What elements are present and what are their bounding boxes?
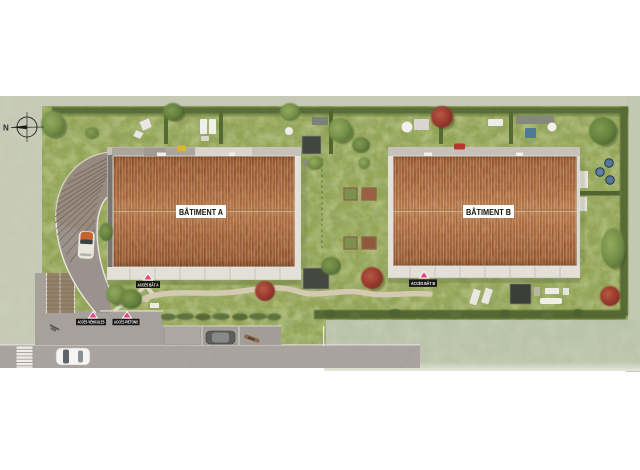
svg-text:BÂTIMENT A: BÂTIMENT A bbox=[179, 206, 223, 217]
svg-text:ACCÈS VÉHICULES: ACCÈS VÉHICULES bbox=[78, 320, 105, 325]
svg-text:ACCÈS BÂT B: ACCÈS BÂT B bbox=[411, 279, 435, 286]
svg-text:BÂTIMENT B: BÂTIMENT B bbox=[466, 206, 511, 217]
svg-text:N: N bbox=[3, 124, 9, 133]
svg-text:ACCÈS BÂT A: ACCÈS BÂT A bbox=[138, 282, 160, 287]
svg-text:ACCÈS PIÉTONS: ACCÈS PIÉTONS bbox=[114, 320, 138, 325]
